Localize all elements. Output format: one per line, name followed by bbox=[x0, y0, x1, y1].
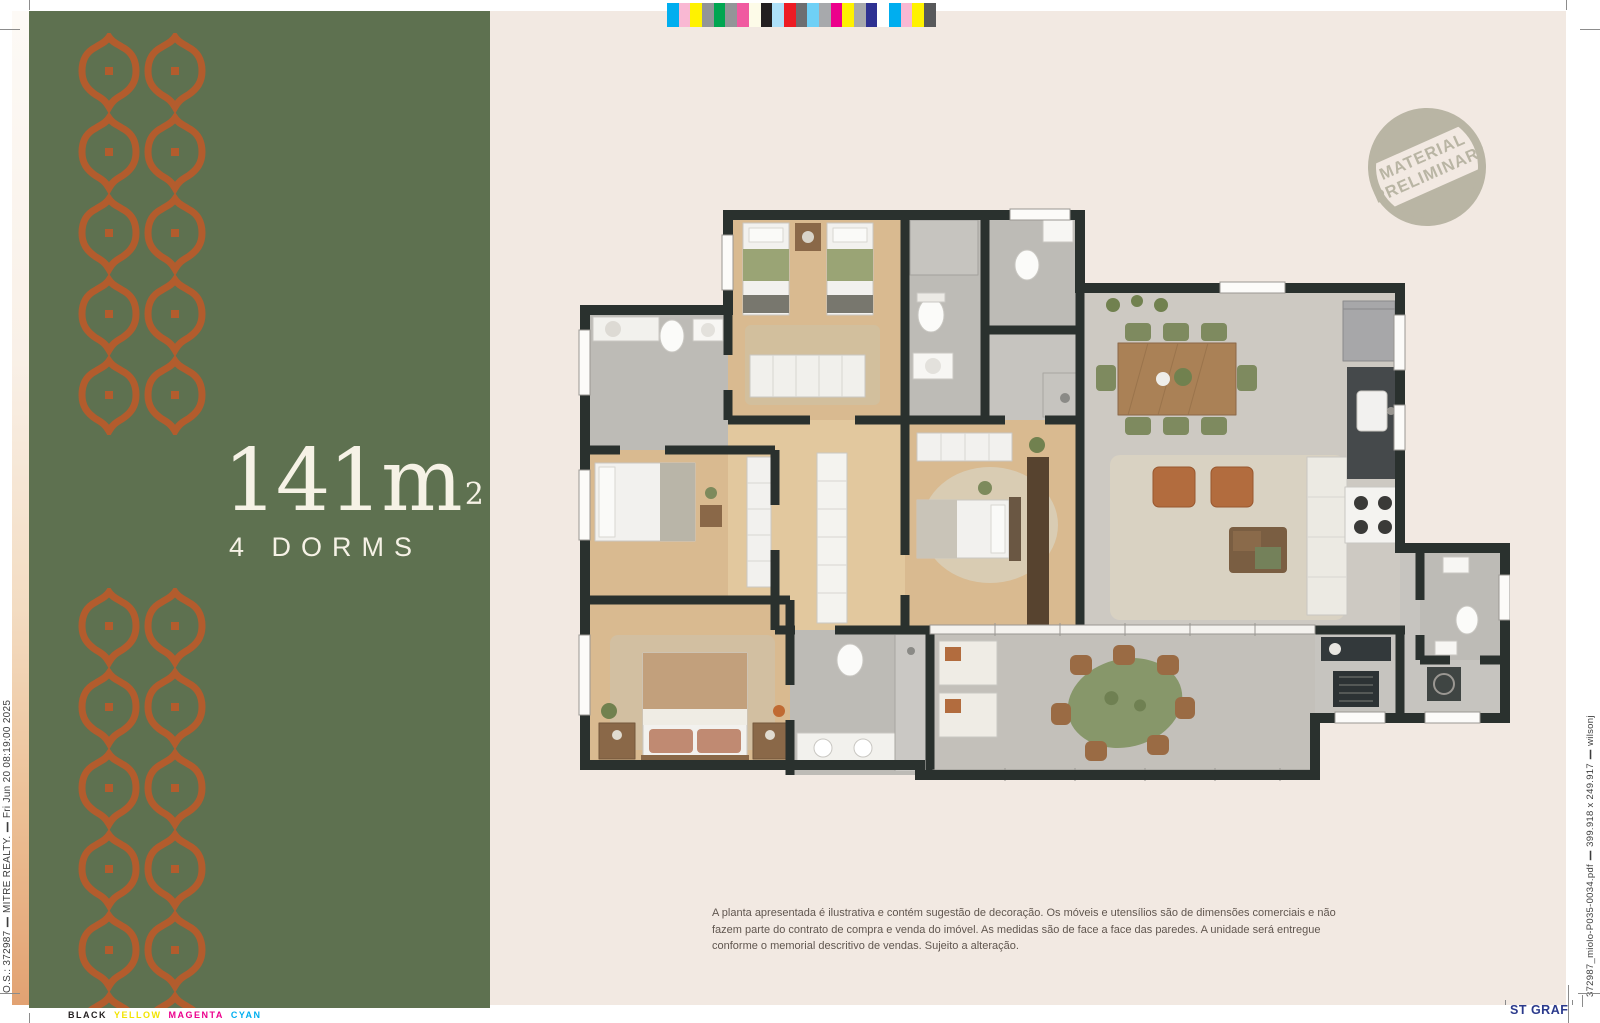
pattern-motif bbox=[148, 916, 202, 986]
pattern-motif bbox=[148, 673, 202, 743]
pattern-motif bbox=[148, 280, 202, 350]
crop-mark-bottom-right-v2 bbox=[1582, 995, 1583, 1007]
floor-plan bbox=[565, 205, 1510, 785]
right-slug-text: 372987_miolo-P035-0034.pdf ❙ 399.918 x 2… bbox=[1585, 765, 1596, 997]
crop-mark-top-right-h bbox=[1580, 29, 1600, 30]
pattern-motif bbox=[148, 118, 202, 188]
color-bar-swatch bbox=[690, 3, 702, 27]
pattern-motif bbox=[148, 199, 202, 269]
color-bar-swatch bbox=[819, 3, 831, 27]
print-proof-sheet: 141m2 4 DORMS MATERIAL PRELIMINAR* bbox=[0, 0, 1600, 1023]
color-bar-swatch bbox=[924, 3, 936, 27]
color-bar-swatch bbox=[749, 3, 761, 27]
ink-word-cyan: CYAN bbox=[231, 1010, 262, 1020]
pattern-motif bbox=[148, 997, 202, 1008]
sidebar: 141m2 4 DORMS bbox=[29, 11, 490, 1008]
kitchen-fixtures bbox=[1343, 301, 1400, 543]
left-slug-text: O.S.: 372987 ❙ MITRE REALTY. ❙ Fri Jun 2… bbox=[2, 698, 13, 993]
color-bar-swatch bbox=[854, 3, 866, 27]
dorms-label: 4 DORMS bbox=[229, 532, 484, 563]
room-shower bbox=[985, 330, 1080, 420]
pattern-motif bbox=[148, 37, 202, 107]
area-superscript: 2 bbox=[465, 477, 484, 512]
pattern-motif bbox=[82, 118, 136, 188]
pattern-motif bbox=[148, 592, 202, 662]
color-bar-swatch bbox=[831, 3, 843, 27]
color-bar-swatch bbox=[912, 3, 924, 27]
color-bar-swatch bbox=[807, 3, 819, 27]
pattern-motif bbox=[82, 673, 136, 743]
area-figure: 141m2 4 DORMS bbox=[223, 436, 484, 563]
pattern-motif bbox=[82, 199, 136, 269]
color-bar-swatch bbox=[737, 3, 749, 27]
sidebar-pattern-bottom bbox=[76, 588, 208, 1008]
crop-mark-top-right-v bbox=[1566, 0, 1567, 10]
pattern-motif bbox=[82, 37, 136, 107]
color-bar-swatch bbox=[772, 3, 784, 27]
spine-gradient bbox=[12, 11, 29, 1005]
crop-mark-top-left-h bbox=[0, 29, 20, 30]
color-bar-swatch bbox=[784, 3, 796, 27]
ink-word-yellow: YELLOW bbox=[114, 1010, 162, 1020]
pattern-motif bbox=[82, 835, 136, 905]
crop-mark-bottom-right-h bbox=[1578, 993, 1600, 994]
color-bar-swatch bbox=[877, 3, 889, 27]
color-bar-swatch bbox=[714, 3, 726, 27]
hall-closet bbox=[817, 453, 847, 623]
color-bar-swatch bbox=[725, 3, 737, 27]
crop-mark-bottom-right-v bbox=[1568, 985, 1569, 1023]
color-bar-swatch bbox=[679, 3, 691, 27]
sidebar-pattern-top bbox=[76, 33, 208, 435]
ink-word-magenta: MAGENTA bbox=[169, 1010, 224, 1020]
pattern-motif bbox=[148, 361, 202, 431]
color-bar-swatch bbox=[866, 3, 878, 27]
color-calibration-bar bbox=[667, 3, 936, 27]
ink-word-black: BLACK bbox=[68, 1010, 107, 1020]
crop-mark-top-left-v bbox=[29, 0, 30, 10]
pattern-motif bbox=[82, 754, 136, 824]
disclaimer-text: A planta apresentada é ilustrativa e con… bbox=[712, 905, 1340, 955]
pattern-motif bbox=[148, 835, 202, 905]
color-bar-swatch bbox=[796, 3, 808, 27]
area-number: 141m bbox=[223, 431, 461, 531]
pattern-motif bbox=[148, 754, 202, 824]
pattern-motif bbox=[82, 592, 136, 662]
crop-mark-bottom-left-v bbox=[29, 1013, 30, 1023]
color-bar-swatch bbox=[761, 3, 773, 27]
printer-logo: ST GRAF bbox=[1510, 1003, 1568, 1017]
color-bar-swatch bbox=[889, 3, 901, 27]
crop-mark-bottom-left-h bbox=[0, 993, 20, 994]
pattern-motif bbox=[82, 280, 136, 350]
color-bar-swatch bbox=[901, 3, 913, 27]
color-bar-swatch bbox=[842, 3, 854, 27]
color-bar-swatch bbox=[702, 3, 714, 27]
pattern-motif bbox=[82, 916, 136, 986]
pattern-motif bbox=[82, 997, 136, 1008]
pattern-motif bbox=[82, 361, 136, 431]
ink-color-words: BLACKYELLOWMAGENTACYAN bbox=[68, 1010, 262, 1020]
color-bar-swatch bbox=[667, 3, 679, 27]
